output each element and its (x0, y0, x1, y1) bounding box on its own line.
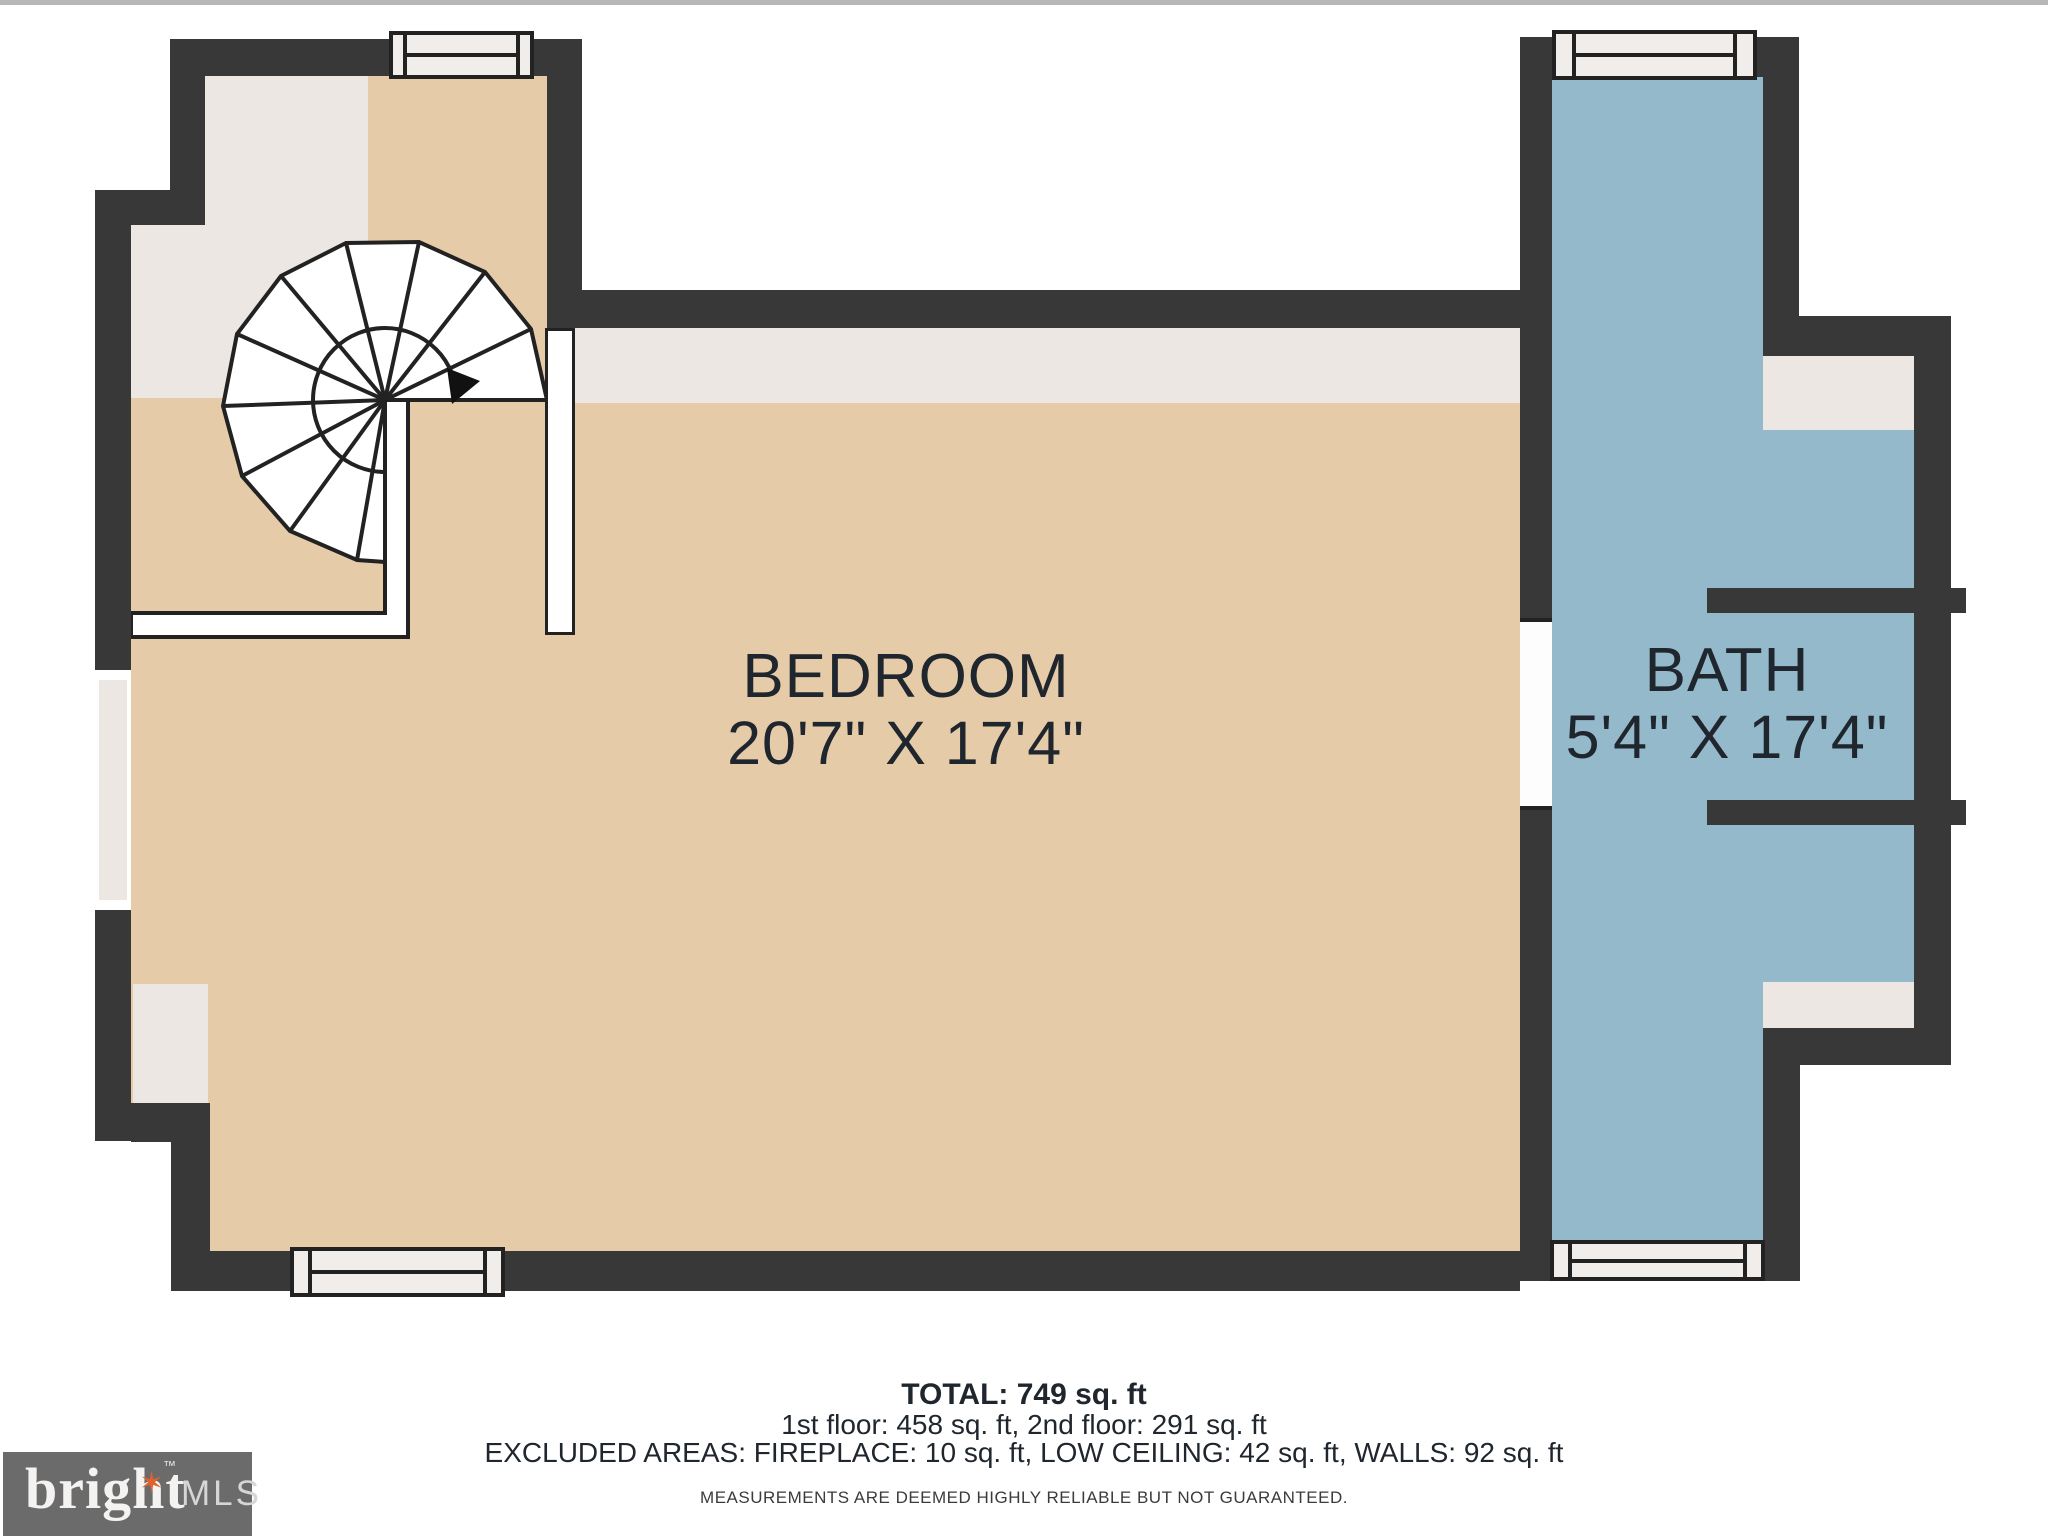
wall-bath-right-lower (1763, 1028, 1800, 1281)
wall-far-left-lower (95, 910, 131, 1141)
bath-doorway-opening (1520, 618, 1552, 810)
bath-dimensions: 5'4" X 17'4" (1566, 704, 1889, 770)
window-bath-top (1552, 30, 1757, 80)
window-divider (516, 35, 520, 75)
logo-suffix-text: MLS (181, 1474, 262, 1514)
logo-star-icon: ✶ (139, 1466, 164, 1501)
bright-mls-logo: bright ✶ ™ MLS (3, 1452, 252, 1536)
bedroom-name: BEDROOM (727, 644, 1085, 710)
window-bath-bottom (1550, 1240, 1765, 1281)
bath-label: BATH 5'4" X 17'4" (1566, 638, 1889, 770)
bedroom-dimensions: 20'7" X 17'4" (727, 710, 1085, 776)
wall-bedroom-top (582, 290, 1552, 328)
wall-step-lower (131, 1103, 210, 1142)
wall-bath-right-upper (1763, 37, 1799, 316)
window-divider (1743, 1244, 1747, 1277)
wall-far-right (1914, 316, 1951, 1065)
wall-left-bottom (171, 1142, 210, 1291)
wall-bath-tab-lower (1707, 800, 1966, 825)
window-divider (1733, 34, 1737, 76)
window-midline (1576, 53, 1733, 57)
window-midline (312, 1270, 483, 1274)
stair-railing-strip-right (545, 328, 575, 635)
wall-bath-left-upper (1520, 37, 1552, 618)
window-midline (407, 53, 516, 57)
disclaimer-text: MEASUREMENTS ARE DEEMED HIGHLY RELIABLE … (0, 1488, 2048, 1508)
wall-bath-tab-upper (1707, 588, 1966, 613)
bath-name: BATH (1566, 638, 1889, 704)
excluded-areas-text: EXCLUDED AREAS: FIREPLACE: 10 sq. ft, LO… (0, 1437, 2048, 1469)
logo-trademark: ™ (163, 1458, 176, 1473)
wall-bath-left-lower (1520, 810, 1552, 1281)
window-stairblock-top (389, 31, 534, 79)
window-divider (483, 1251, 487, 1293)
floor-plan-page: BEDROOM 20'7" X 17'4" BATH 5'4" X 17'4" … (0, 0, 2048, 1536)
wall-stairblock-right (547, 76, 582, 328)
bedroom-label: BEDROOM 20'7" X 17'4" (727, 644, 1085, 776)
window-bedroom-bottom (290, 1247, 505, 1297)
wall-far-left-upper (95, 190, 131, 670)
total-area-text: TOTAL: 749 sq. ft (0, 1378, 2048, 1412)
window-midline (1572, 1259, 1743, 1263)
